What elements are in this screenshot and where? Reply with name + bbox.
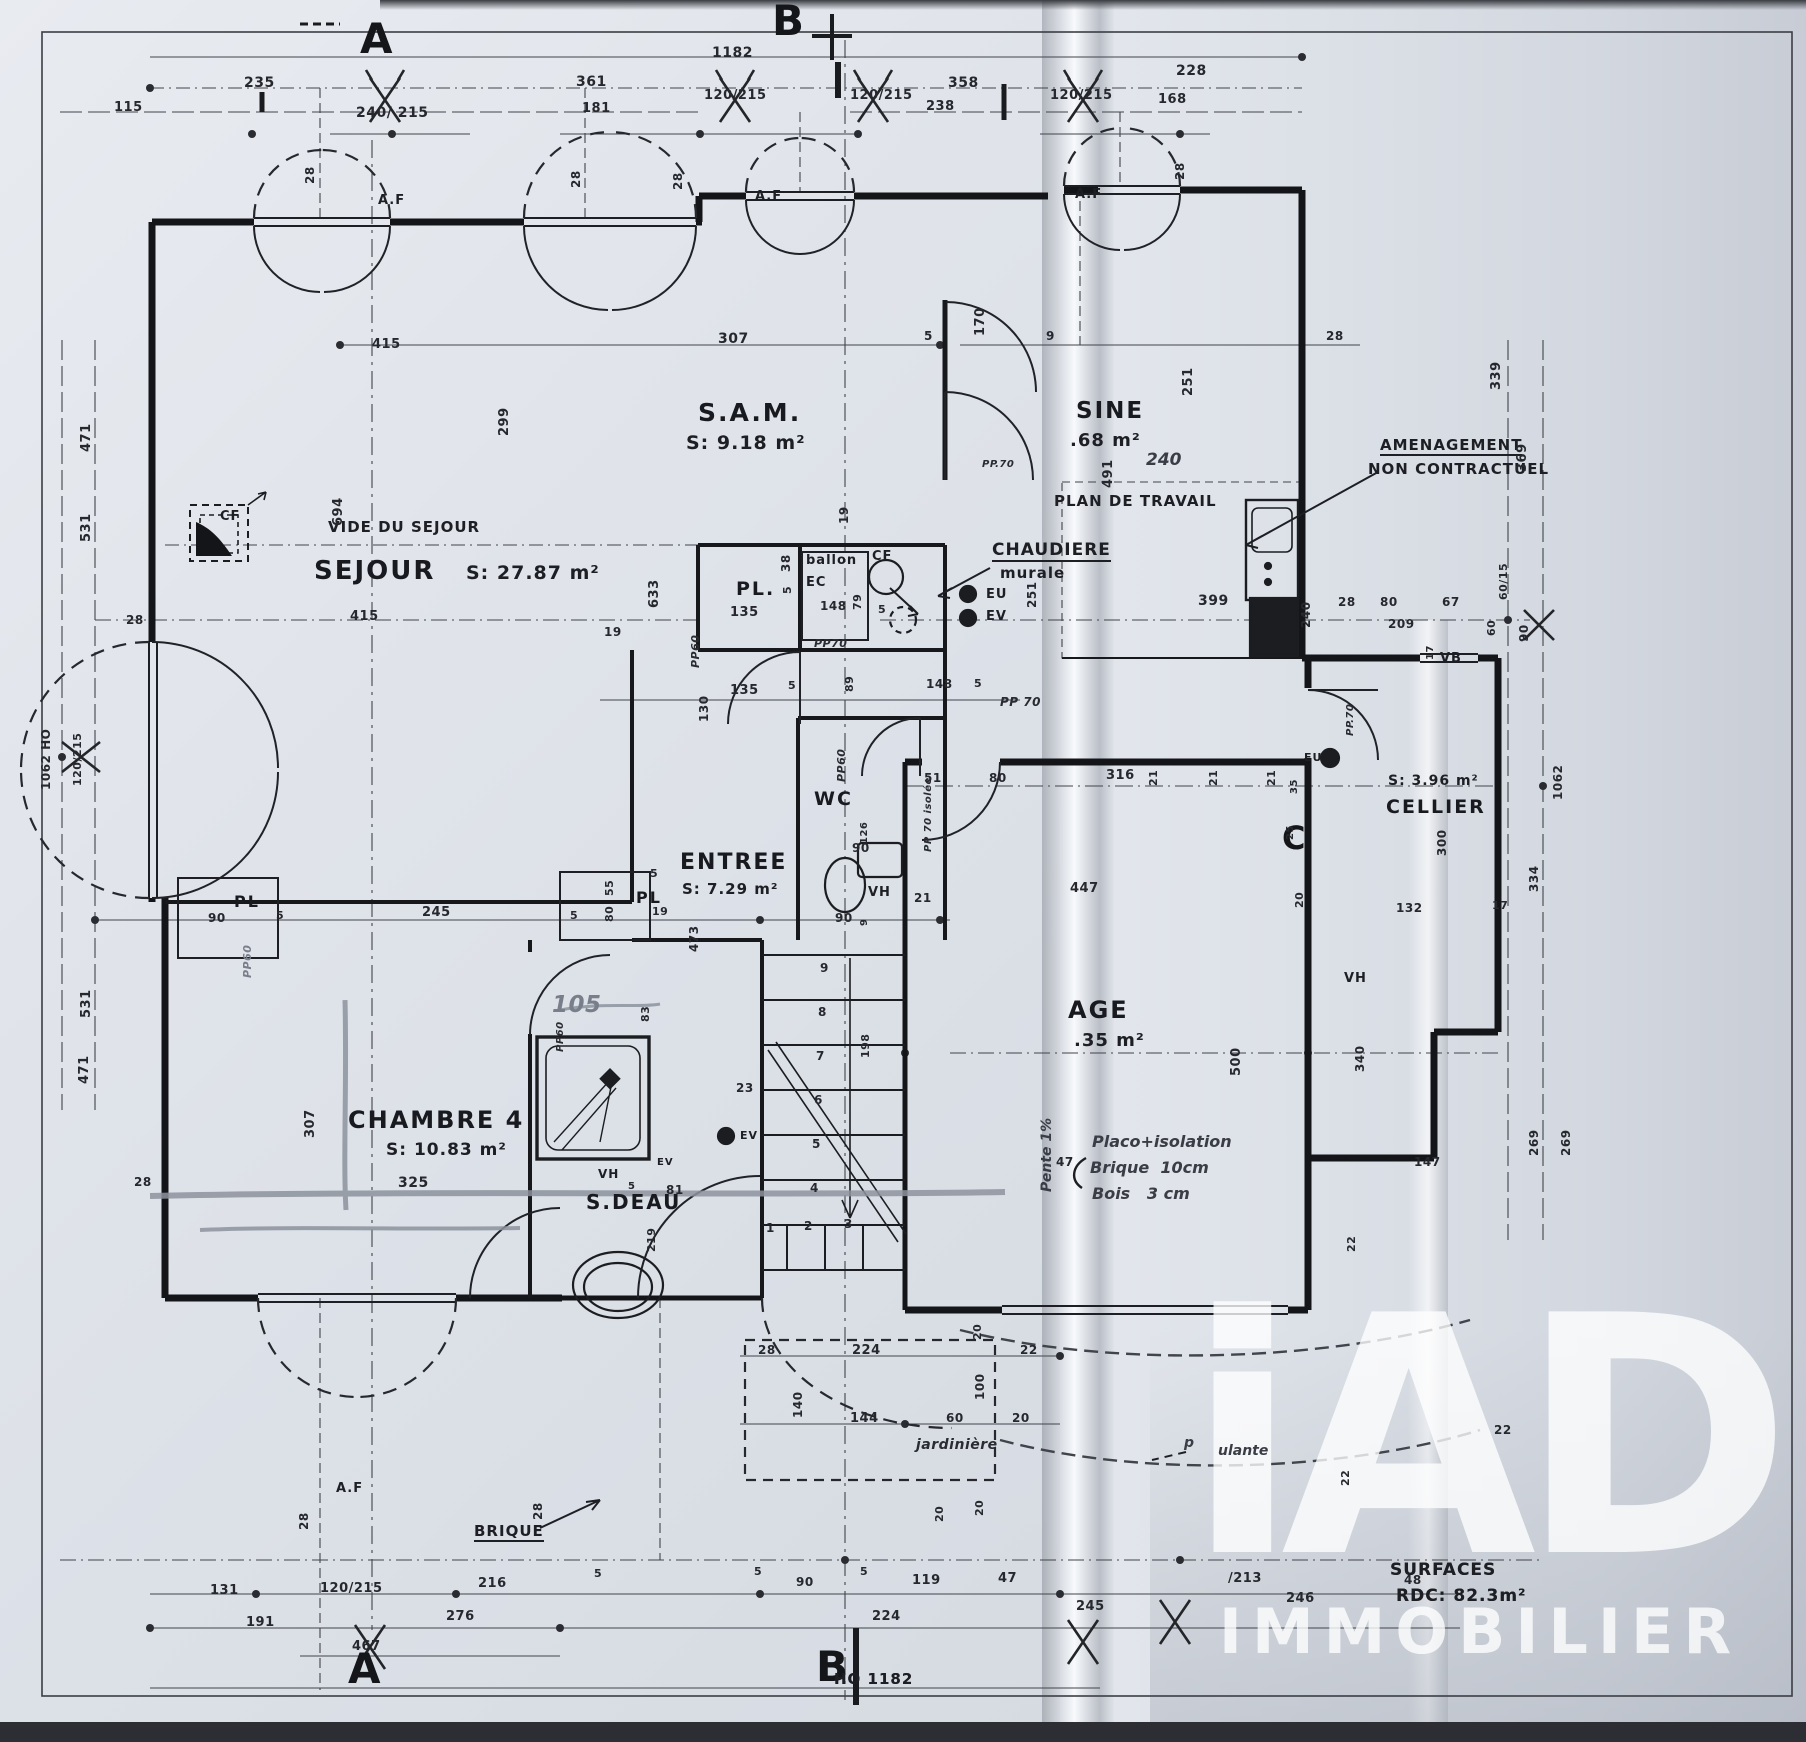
dim-label: 20 [1294,892,1305,908]
dim-label: 5 [754,1566,762,1577]
dim-label: 415 [372,338,401,351]
ann-label: VH [598,1168,619,1180]
dim-label: 198 [860,1034,871,1058]
dim-label: 9 [860,919,870,926]
marker-label: A [348,1648,381,1690]
dim-label: 3 [844,1218,853,1230]
dim-label: 471 [78,1055,91,1084]
dim-label: 22 [1340,1470,1351,1486]
dim-label: 694 [332,497,345,526]
axis-cross-icon [62,70,1554,1669]
room-label: S: 7.29 m² [682,882,778,897]
ann-label: A.F [755,190,782,203]
dim-label: 47 [1056,1156,1074,1168]
ann-label: VB [1440,652,1462,665]
dim-label: 5 [628,1182,635,1192]
dim-label: 21 [1208,770,1219,786]
dim-label: 1062 [1552,765,1564,800]
dim-label: 79 [852,594,863,610]
hand-label: Pente 1% [1040,1118,1054,1192]
dim-label: 1 [766,1222,775,1234]
room-label: VIDE DU SEJOUR [328,520,480,535]
dim-label: 316 [1106,769,1135,782]
dim-label: 531 [80,513,93,542]
dim-label: 209 [1388,618,1415,630]
ann-label: EV [740,1130,758,1141]
dim-label: 224 [872,1610,901,1623]
dim-label: 1062 HO [40,729,52,790]
dim-label: 5 [974,678,982,689]
dim-label: 300 [1436,829,1448,856]
hand-label: 240 [1146,452,1182,469]
dim-label: 191 [246,1616,275,1629]
hand-label: Brique 10cm [1090,1160,1209,1176]
dim-label: 28 [1326,330,1344,342]
stairs [762,955,906,1270]
dim-label: 5 [878,604,886,615]
dim-label: 120/215 [850,89,913,102]
ann-label: BRIQUE [474,1524,544,1542]
dim-label: 4 [810,1182,819,1194]
dim-label: 19 [838,506,850,524]
dim-label: 90 [852,842,870,854]
dim-label: 28 [532,1502,544,1520]
room-label: PL. [736,580,775,599]
dim-label: 22 [1020,1344,1038,1356]
dim-label: 5 [860,1566,868,1577]
dim-label: 100 [974,1373,986,1400]
dim-label: 170 [974,307,987,336]
dim-label: 147 [1414,1156,1441,1168]
dim-label: 20 [1012,1412,1030,1424]
marker-label: B [772,0,804,42]
room-label: S: 10.83 m² [386,1142,507,1159]
dim-label: 228 [1176,64,1207,78]
dim-label: 369 [1516,443,1529,472]
ann-label: murale [1000,566,1065,581]
dim-label: 115 [114,101,143,114]
dim-label: 17 [1492,900,1508,911]
dim-label: 415 [350,610,379,623]
ann-label: CF [220,510,240,523]
room-label: PLAN DE TRAVAIL [1054,494,1217,509]
dim-label: 119 [912,1574,941,1587]
dim-label: 23 [736,1082,754,1094]
dim-label: 467 [352,1640,381,1653]
ann-label: PP 70 isolée [924,777,934,852]
dim-label: 120/215 [320,1582,383,1595]
ann-label: AMENAGEMENT [1380,438,1522,456]
dim-label: 20 [972,1324,983,1340]
dim-label: 28 [304,166,316,184]
dim-label: 224 [852,1344,881,1357]
ann-label: A.F [1075,188,1102,201]
dim-label: 5 [650,868,658,879]
dim-label: 299 [498,407,511,436]
dim-label: 21 [1266,770,1277,786]
room-label: S.A.M. [698,400,801,425]
dim-label: 28 [126,614,144,626]
dim-label: 135 [730,606,759,619]
jardiniere-outline [745,1340,995,1480]
dim-label: 491 [1102,459,1115,488]
footer-surfaces_value: RDC: 82.3m² [1396,1588,1527,1605]
footer-plan_ref: HO 1182 [834,1672,913,1687]
dim-label: 219 [646,1228,657,1252]
dim-label: 28 [1338,596,1356,608]
dim-label: 235 [244,76,275,90]
dim-label: 90 [835,912,853,924]
dim-label: 132 [1396,902,1423,914]
dim-label: 17 [1426,645,1436,660]
dim-label: 148 [926,678,953,690]
dim-label: 60/15 [1498,563,1509,600]
dim-label: 80 [989,772,1007,784]
dim-label: 216 [478,1577,507,1590]
dim-label: 89 [844,676,855,692]
dim-label: 67 [1442,596,1460,608]
dim-label: 6 [814,1094,823,1106]
dim-label: 2 [804,1220,813,1232]
dim-label: 131 [210,1584,239,1597]
dim-label: 633 [648,579,661,608]
dim-label: 7 [816,1050,825,1062]
room-label: SINE [1076,400,1144,423]
dim-label: 81 [666,1184,684,1196]
dim-label: 5 [570,910,578,921]
dim-label: 21 [914,892,932,904]
ann-label: PP 70 [1000,696,1041,708]
hand-label: 105 [552,994,602,1017]
dim-label: 60 [946,1412,964,1424]
hand-label: ulante [1218,1444,1268,1458]
dim-label: 168 [1158,93,1187,106]
room-label: CHAMBRE 4 [348,1108,524,1132]
dim-label: 80 [1380,596,1398,608]
room-label: S: 27.87 m² [466,564,600,583]
ann-label: CHAUDIERE [992,542,1111,562]
footer-surfaces_title: SURFACES [1390,1562,1496,1579]
ann-label: EV [986,610,1007,623]
room-label: PL [234,894,260,910]
dim-label: 531 [80,989,93,1018]
dim-label: 120/215 [72,733,83,786]
room-label: CELLIER [1386,798,1486,817]
room-label: WC [814,790,853,809]
room-label: .68 m² [1070,432,1141,450]
dim-label: 334 [1528,865,1540,892]
dim-label: 90 [208,912,226,924]
dim-label: 148 [820,600,847,612]
ann-label: PP60 [242,945,253,978]
dim-label: 9 [1046,330,1055,342]
dim-label: 90 [796,1576,814,1588]
room-label: S: 3.96 m² [1388,774,1479,788]
dim-label: 307 [718,332,749,346]
room-label: .35 m² [1074,1032,1145,1050]
dimension-lines [60,40,1543,1700]
dim-label: 90 [1518,624,1530,642]
dim-label: 28 [134,1176,152,1188]
dim-label: 5 [788,680,796,691]
dim-label: 80 [604,906,615,922]
dim-label: 55 [604,880,615,896]
dim-label: 135 [730,684,759,697]
dim-label: 22 [1494,1424,1512,1436]
hand-label: Placo+isolation [1092,1134,1232,1150]
dim-label: 28 [298,1512,310,1530]
dim-label: 240 [1300,601,1312,628]
dim-label: 5 [924,330,933,342]
dim-label: 307 [304,1109,317,1138]
ann-label: ballon [806,554,857,567]
dim-label: 251 [1026,581,1038,608]
dim-label: 269 [1560,1129,1572,1156]
dim-label: 361 [576,75,607,89]
ann-label: PP60 [556,1021,566,1052]
dim-label: 399 [1198,594,1229,608]
dim-label: 473 [688,925,700,952]
dim-label: 8 [818,1006,827,1018]
room-label: S: 9.18 m² [686,434,806,453]
ann-label: A.F [336,1482,363,1495]
ann-label: PP70 [814,638,847,649]
dim-label: 5 [782,586,793,594]
room-label: ENTREE [680,852,787,874]
dim-label: 251 [1182,367,1195,396]
dim-label: 5 [276,910,284,921]
ann-label: PP.70 [982,460,1014,470]
ann-label: EU [986,588,1007,601]
hand-label: Bois 3 cm [1092,1186,1190,1202]
dim-label: 1182 [712,46,753,60]
dim-label: 19 [652,906,668,917]
dim-label: 25 [1286,825,1296,840]
marker-label: A [360,18,393,60]
room-label: AGE [1068,998,1129,1022]
dim-label: 269 [1528,1129,1540,1156]
dim-label: /213 [1228,1572,1262,1585]
exterior-walls [152,190,1498,1310]
dim-label: 47 [998,1572,1017,1585]
dim-label: 120/215 [704,89,767,102]
dim-label: 144 [850,1412,879,1425]
dim-label: 447 [1070,882,1099,895]
dim-label: 22 [1346,1236,1357,1252]
dim-label: 340 [1354,1045,1366,1072]
dim-label: 9 [820,962,829,974]
ann-label: CF [872,550,892,563]
dim-label: 20 [974,1500,985,1516]
dim-label: 21 [1148,770,1159,786]
dim-label: 276 [446,1610,475,1623]
ann-label: VH [1344,972,1367,985]
dim-label: 140 [792,1391,804,1418]
dim-label: 245 [1076,1600,1105,1613]
dim-label: 51 [924,772,942,784]
dim-label: 83 [640,1006,651,1022]
dim-label: 246 [1286,1592,1315,1605]
dim-label: 325 [398,1176,429,1190]
dim-label: 358 [948,76,979,90]
dim-label: 28 [672,172,684,190]
dim-label: 35 [1290,779,1300,794]
dim-label: 19 [604,626,622,638]
dim-label: 38 [780,554,792,572]
room-label: PL [636,890,662,906]
floor-plan-scan: iAD IMMOBILIER ABABCSEJOURS: 27.87 m²S.A… [0,0,1806,1742]
dim-label: 5 [812,1138,821,1150]
dim-label: 238 [926,100,955,113]
ann-label: PP.70 [1346,704,1356,736]
dim-label: 5 [594,1568,602,1579]
hand-label: p [1184,1436,1194,1450]
ann-label: EU [1304,752,1322,763]
ann-label: EC [806,576,826,589]
dim-label: 130 [698,695,710,722]
dim-label: 181 [582,102,611,115]
ann-label: A.F [378,194,405,207]
ann-label: PP60 [690,635,701,668]
dim-label: 120/215 [1050,89,1113,102]
dim-label: 60 [1486,620,1497,636]
dim-label: 500 [1230,1047,1243,1076]
room-label: SEJOUR [314,558,435,584]
ann-label: EV [657,1158,674,1168]
dim-label: 28 [570,170,582,188]
ann-label: VH [868,886,891,899]
ann-label: jardinière [916,1438,998,1452]
ann-label: PP60 [836,749,847,782]
dim-label: 240/ 215 [356,106,428,120]
dim-label: 28 [1174,162,1186,180]
dim-label: 28 [758,1344,776,1356]
dim-label: 339 [1490,361,1503,390]
dim-label: 471 [80,423,93,452]
dim-label: 245 [422,906,451,919]
dim-label: 20 [934,1506,945,1522]
